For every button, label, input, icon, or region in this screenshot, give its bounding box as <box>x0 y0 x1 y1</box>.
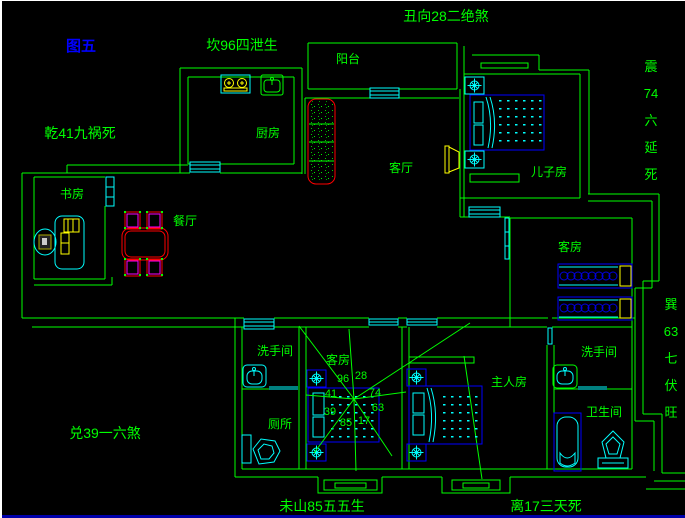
cad-floorplan-canvas: 96 28 41 74 39 63 85 17 图五 坎96四泄生 丑向28二绝… <box>0 0 685 518</box>
compass-number: 74 <box>369 387 381 399</box>
washbasin-icon <box>553 365 577 388</box>
entry-step-right <box>452 480 500 490</box>
compass-number: 17 <box>358 415 370 427</box>
nightstand-icon <box>465 77 484 94</box>
window <box>190 88 500 329</box>
nightstand-icon <box>407 444 426 461</box>
room-label-study: 书房 <box>60 188 84 200</box>
room-label-master-bedroom: 主人房 <box>491 376 527 388</box>
fengshui-label-left: 乾41九祸死 <box>44 126 116 140</box>
room-label-living-room: 客厅 <box>389 162 413 174</box>
compass-number: 85 <box>340 417 352 429</box>
compass-number: 63 <box>372 402 384 414</box>
fengshui-label-bottom-center: 未山85五五生 <box>279 499 365 513</box>
shelf-icon <box>470 174 519 182</box>
bed-icon <box>470 95 544 150</box>
room-label-bathroom: 卫生间 <box>586 406 622 418</box>
compass-number: 28 <box>355 370 367 382</box>
nightstand-icon <box>307 370 326 387</box>
room-label-dining: 餐厅 <box>173 215 197 227</box>
entry-step-left <box>324 480 377 490</box>
compass-number: 96 <box>337 373 349 385</box>
plant-icon <box>308 99 335 184</box>
room-label-balcony: 阳台 <box>336 53 360 65</box>
wardrobe-icon <box>481 63 528 68</box>
room-label-toilet: 厕所 <box>268 418 292 430</box>
dining-chair-icon <box>124 211 163 276</box>
door <box>106 177 607 389</box>
nightstand-icon <box>407 369 426 386</box>
room-label-washroom-right: 洗手间 <box>581 346 617 358</box>
room-label-guest-room-right: 客房 <box>558 241 582 253</box>
toilet-icon <box>598 431 628 468</box>
room-label-sons-room: 儿子房 <box>531 166 567 178</box>
fengshui-label-top: 丑向28二绝煞 <box>403 9 489 23</box>
room-label-washroom-left: 洗手间 <box>257 345 293 357</box>
guest-bed-icon <box>558 264 632 288</box>
office-chair-icon <box>34 229 56 255</box>
dining-table-icon <box>122 228 168 260</box>
washbasin-icon <box>243 365 266 387</box>
fengshui-label-bottom-right: 离17三天死 <box>510 499 582 513</box>
bathtub-icon <box>554 413 581 471</box>
toilet-icon <box>242 435 280 464</box>
guest-bed-icon <box>558 297 632 320</box>
kitchen-sink-icon <box>261 75 283 95</box>
fengshui-label-bottom-left: 兑39一六煞 <box>69 426 141 440</box>
bed-icon <box>409 386 482 444</box>
compass-number: 41 <box>325 388 337 400</box>
room-label-guest-room-center: 客房 <box>326 354 350 366</box>
figure-number-label: 图五 <box>66 39 96 54</box>
tv-icon <box>445 146 459 173</box>
fengshui-label-top-left: 坎96四泄生 <box>206 38 278 52</box>
compass-number: 39 <box>324 406 336 418</box>
desk-icon <box>55 216 84 269</box>
stove-icon <box>221 75 250 93</box>
room-label-kitchen: 厨房 <box>256 127 280 139</box>
nightstand-icon <box>465 151 484 168</box>
fengshui-label-right-top: 震74六延死 <box>642 53 660 188</box>
nightstand-icon <box>307 444 326 461</box>
fengshui-label-right-bottom: 巽63七伏旺 <box>662 291 680 426</box>
